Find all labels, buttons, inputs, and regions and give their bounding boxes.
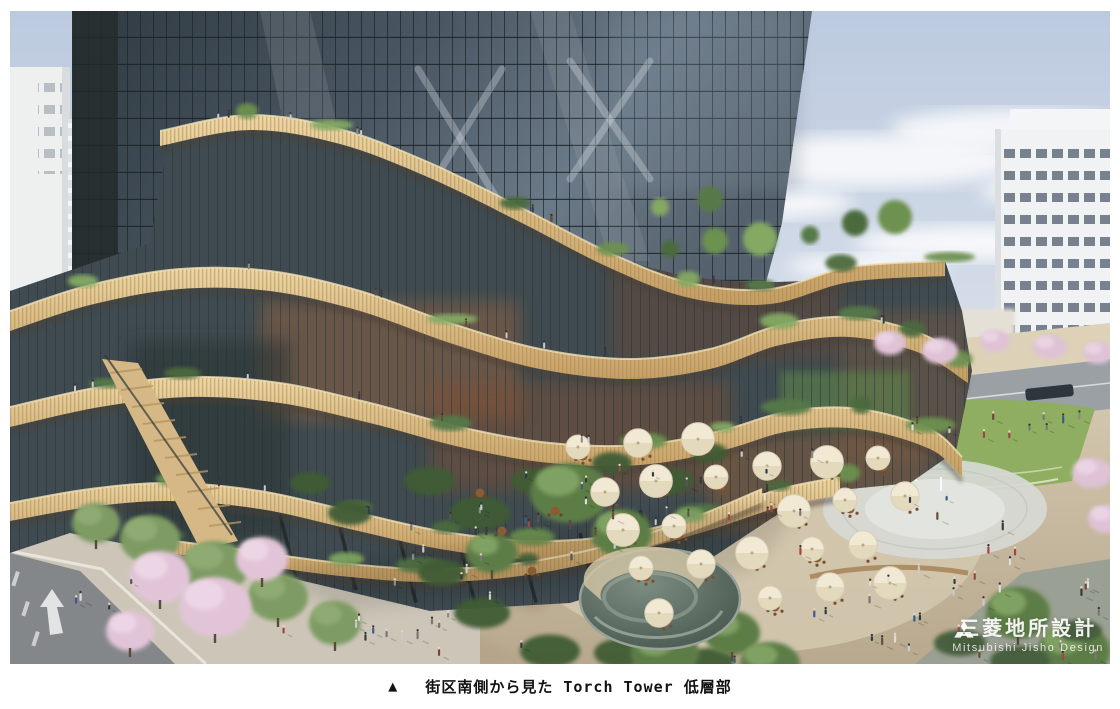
scene-svg	[10, 11, 1110, 664]
page: 三菱地所設計 Mitsubishi Jisho Design ▲街区南側から見た…	[0, 0, 1120, 709]
caption-marker: ▲	[388, 677, 397, 695]
rendering-image: 三菱地所設計 Mitsubishi Jisho Design	[10, 11, 1110, 664]
figure-caption: ▲街区南側から見た Torch Tower 低層部	[0, 676, 1120, 697]
caption-text: 街区南側から見た Torch Tower 低層部	[425, 678, 731, 696]
